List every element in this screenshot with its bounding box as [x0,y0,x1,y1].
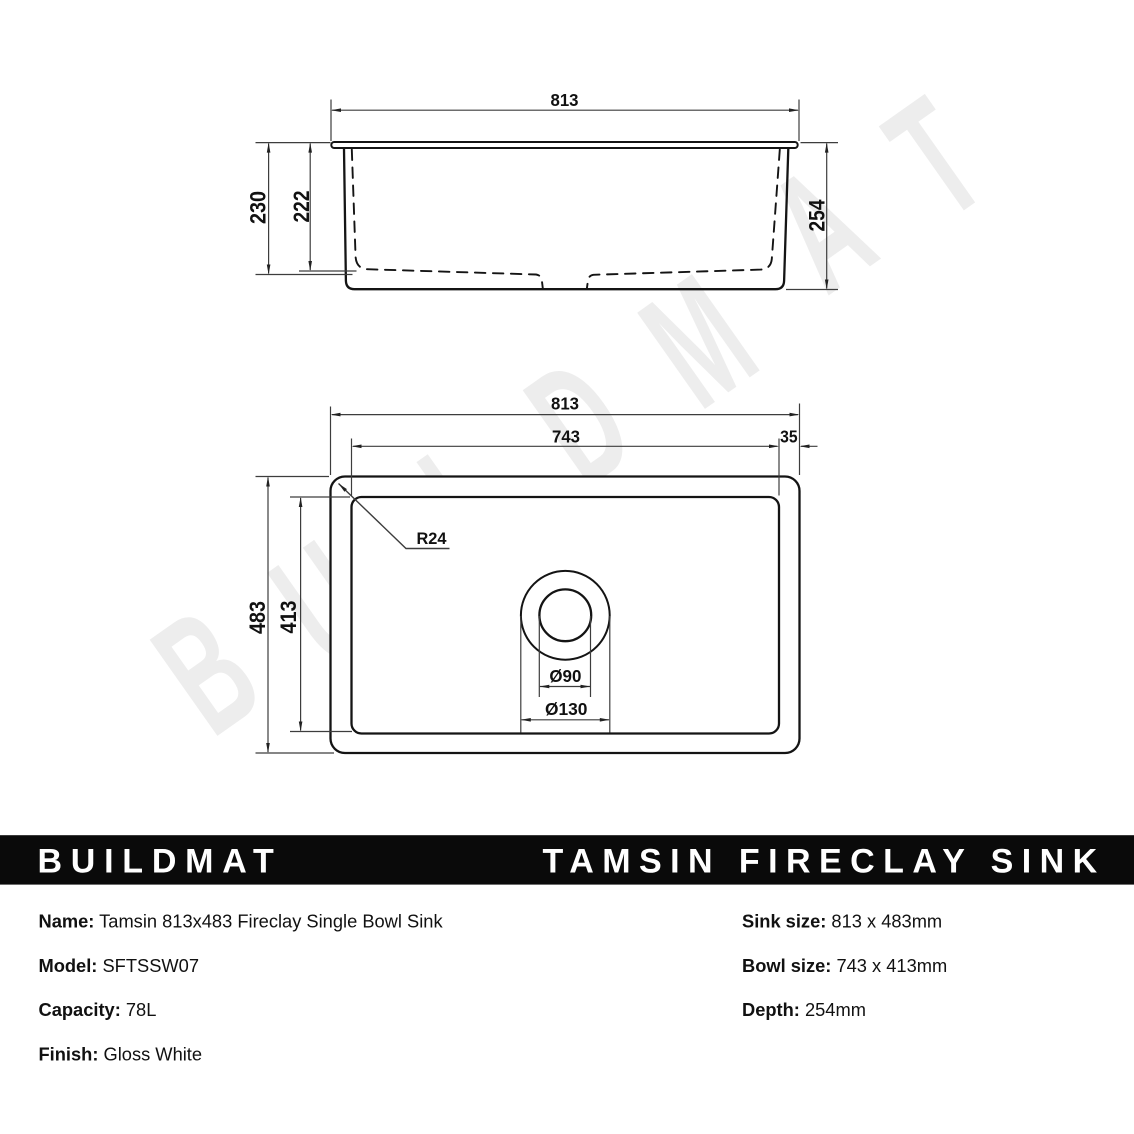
svg-text:35: 35 [780,426,798,446]
svg-text:BUILDMAT: BUILDMAT [38,843,283,881]
svg-text:743: 743 [552,426,580,446]
svg-text:Bowl size: 743 x 413mm: Bowl size: 743 x 413mm [742,955,947,976]
svg-text:Finish: Gloss White: Finish: Gloss White [39,1044,203,1065]
svg-text:254: 254 [804,199,829,231]
svg-text:413: 413 [276,601,301,634]
svg-text:Name: Tamsin 813x483 Fireclay: Name: Tamsin 813x483 Fireclay Single Bow… [39,911,444,932]
svg-text:230: 230 [246,191,271,224]
svg-text:Sink size: 813 x 483mm: Sink size: 813 x 483mm [742,911,942,932]
svg-text:TAMSIN FIRECLAY SINK: TAMSIN FIRECLAY SINK [543,843,1106,881]
svg-text:Ø90: Ø90 [549,666,581,686]
svg-text:222: 222 [289,191,314,223]
svg-text:Model: SFTSSW07: Model: SFTSSW07 [39,955,200,976]
svg-text:Depth: 254mm: Depth: 254mm [742,999,866,1020]
svg-text:Ø130: Ø130 [545,699,588,719]
svg-text:483: 483 [245,601,270,634]
svg-text:813: 813 [551,393,579,413]
svg-text:Capacity: 78L: Capacity: 78L [39,999,157,1020]
svg-text:R24: R24 [417,529,448,548]
svg-text:813: 813 [551,90,579,110]
